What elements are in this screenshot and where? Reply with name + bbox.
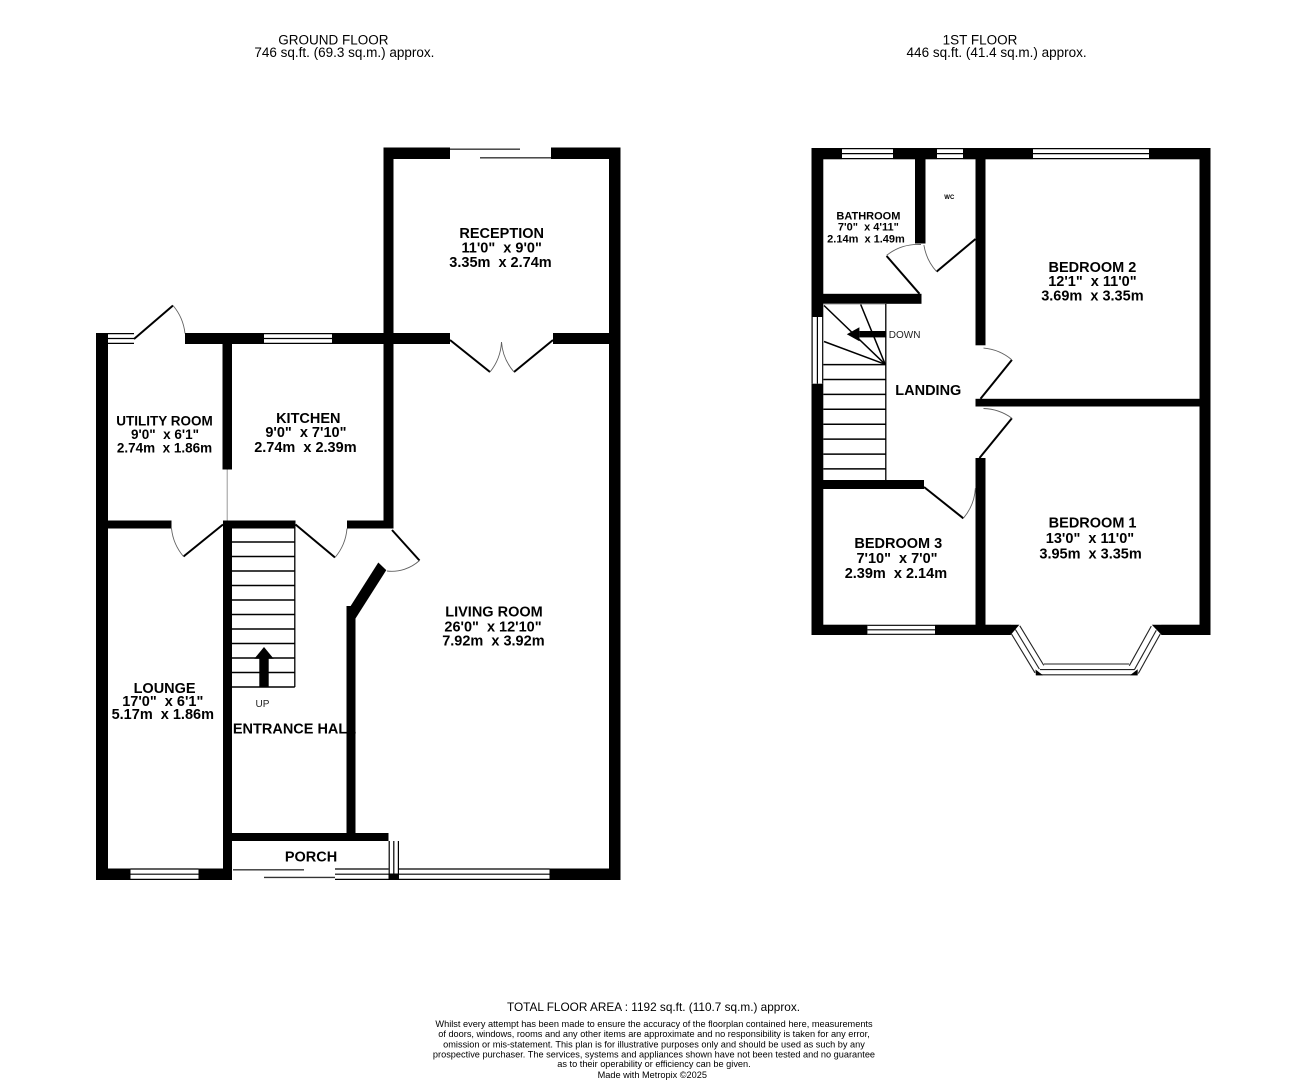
- svg-text:Whilst every attempt has been: Whilst every attempt has been made to en…: [435, 1019, 873, 1029]
- svg-text:9'0" x 7'10": 9'0" x 7'10": [265, 425, 346, 441]
- svg-text:DOWN: DOWN: [889, 330, 921, 341]
- svg-text:of doors, windows, rooms and a: of doors, windows, rooms and any other i…: [438, 1029, 870, 1039]
- svg-text:2.74m x 2.39m: 2.74m x 2.39m: [254, 440, 356, 456]
- svg-text:WC: WC: [944, 195, 955, 201]
- svg-text:LANDING: LANDING: [895, 383, 961, 399]
- svg-text:PORCH: PORCH: [285, 849, 337, 865]
- svg-text:omission or mis-statement. Thi: omission or mis-statement. This plan is …: [443, 1039, 865, 1049]
- svg-text:UP: UP: [256, 699, 270, 710]
- svg-text:7'0" x 4'11": 7'0" x 4'11": [838, 222, 899, 234]
- svg-text:BEDROOM 1: BEDROOM 1: [1049, 515, 1137, 531]
- svg-text:as to their operability or eff: as to their operability or efficiency ca…: [557, 1059, 750, 1069]
- svg-text:5.17m x 1.86m: 5.17m x 1.86m: [112, 707, 214, 723]
- svg-text:7.92m x 3.92m: 7.92m x 3.92m: [442, 634, 544, 650]
- svg-text:ENTRANCE HALL: ENTRANCE HALL: [233, 721, 356, 737]
- svg-text:2.39m x 2.14m: 2.39m x 2.14m: [845, 566, 947, 582]
- svg-text:2.74m x 1.86m: 2.74m x 1.86m: [117, 441, 212, 456]
- svg-text:13'0" x 11'0": 13'0" x 11'0": [1046, 531, 1134, 547]
- svg-text:3.69m x 3.35m: 3.69m x 3.35m: [1041, 289, 1143, 305]
- svg-text:TOTAL FLOOR AREA : 1192 sq.ft.: TOTAL FLOOR AREA : 1192 sq.ft. (110.7 sq…: [507, 1000, 800, 1014]
- svg-text:446 sq.ft. (41.4 sq.m.) approx: 446 sq.ft. (41.4 sq.m.) approx.: [907, 45, 1087, 60]
- svg-text:prospective purchaser. The ser: prospective purchaser. The services, sys…: [433, 1050, 875, 1060]
- svg-text:Made with Metropix ©2025: Made with Metropix ©2025: [598, 1070, 707, 1080]
- svg-text:3.95m x 3.35m: 3.95m x 3.35m: [1039, 546, 1141, 562]
- svg-text:RECEPTION: RECEPTION: [459, 226, 544, 242]
- svg-text:LIVING ROOM: LIVING ROOM: [445, 604, 542, 620]
- svg-text:3.35m x 2.74m: 3.35m x 2.74m: [449, 255, 551, 271]
- svg-text:BEDROOM 3: BEDROOM 3: [854, 536, 942, 552]
- svg-text:746 sq.ft. (69.3 sq.m.) approx: 746 sq.ft. (69.3 sq.m.) approx.: [254, 45, 434, 60]
- svg-text:7'10" x 7'0": 7'10" x 7'0": [856, 551, 937, 567]
- svg-text:2.14m x 1.49m: 2.14m x 1.49m: [827, 233, 905, 245]
